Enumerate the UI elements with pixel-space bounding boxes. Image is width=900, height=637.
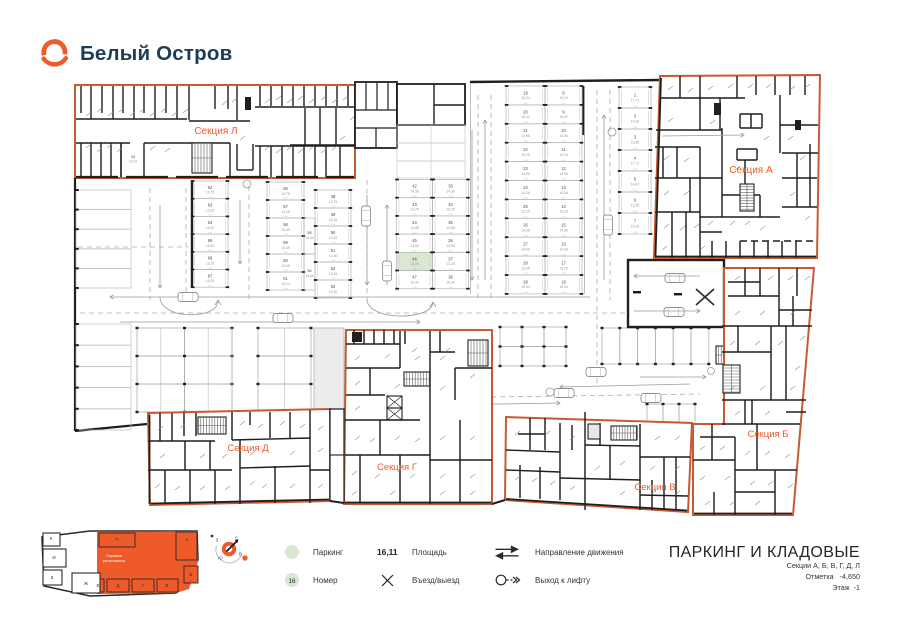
svg-text:22: 22 [523,147,528,152]
svg-text:59: 59 [283,240,288,245]
svg-text:37: 37 [448,256,453,261]
svg-text:13,25: 13,25 [306,236,314,240]
svg-text:19,30: 19,30 [631,119,640,123]
svg-text:14,06: 14,06 [521,247,530,251]
svg-text:К: К [50,536,53,541]
svg-text:65: 65 [208,238,213,243]
svg-text:Б: Б [190,572,193,577]
svg-text:13,25: 13,25 [446,262,455,266]
svg-text:Секции А, Б, В, Г, Д, Л: Секции А, Б, В, Г, Д, Л [787,561,861,570]
svg-text:14,36: 14,36 [410,189,419,193]
svg-text:10: 10 [561,128,566,133]
svg-text:27: 27 [523,242,528,247]
svg-text:15,28: 15,28 [631,224,640,228]
svg-text:13,25: 13,25 [521,210,530,214]
svg-text:14,96: 14,96 [446,244,455,248]
svg-text:36: 36 [448,238,453,243]
svg-text:14,50: 14,50 [206,226,215,230]
svg-text:35: 35 [448,220,453,225]
svg-text:19: 19 [523,91,528,96]
svg-text:Д: Д [116,583,119,588]
svg-text:Секция Д: Секция Д [227,443,269,454]
svg-text:14,30: 14,30 [329,290,338,294]
svg-text:14,06: 14,06 [521,229,530,233]
svg-text:25: 25 [523,204,528,209]
svg-text:55: 55 [307,231,311,235]
svg-text:34: 34 [448,202,453,207]
svg-text:56: 56 [283,186,288,191]
svg-text:15,25: 15,25 [559,210,568,214]
svg-text:13,25: 13,25 [559,153,568,157]
svg-text:ПАРКИНГ И КЛАДОВЫЕ: ПАРКИНГ И КЛАДОВЫЕ [669,544,860,561]
svg-text:15,34: 15,34 [521,285,530,289]
svg-text:64: 64 [208,220,213,225]
svg-text:13,25: 13,25 [410,262,419,266]
svg-text:Секция Г: Секция Г [377,462,417,473]
svg-text:48: 48 [331,194,336,199]
svg-text:14,82: 14,82 [329,236,338,240]
svg-text:16,03: 16,03 [129,160,137,164]
svg-text:Въезд/выезд: Въезд/выезд [412,576,460,585]
svg-text:13,25: 13,25 [521,153,530,157]
svg-text:16,02: 16,02 [521,115,530,119]
svg-text:44: 44 [412,220,417,225]
svg-text:А: А [185,537,188,542]
svg-text:54: 54 [307,269,311,273]
svg-text:67: 67 [208,273,213,278]
svg-text:Отметка -4,650: Отметка -4,650 [805,572,860,581]
svg-text:16,02: 16,02 [559,115,568,119]
svg-text:Паркинг: Паркинг [313,548,343,557]
svg-text:Этаж -1: Этаж -1 [832,583,860,592]
svg-text:24: 24 [523,185,528,190]
svg-text:29: 29 [523,279,528,284]
svg-text:33: 33 [448,184,453,189]
svg-text:Ю: Ю [218,556,223,561]
svg-text:14,06: 14,06 [559,172,568,176]
svg-text:34: 34 [131,155,135,159]
svg-text:13,25: 13,25 [446,208,455,212]
svg-text:14,06: 14,06 [559,247,568,251]
svg-text:15,14: 15,14 [281,282,290,286]
svg-text:Направление движения: Направление движения [535,548,624,557]
svg-text:13,25: 13,25 [281,264,290,268]
svg-text:Е: Е [96,583,99,588]
svg-text:14,06: 14,06 [559,229,568,233]
svg-text:17,72: 17,72 [631,161,640,165]
svg-text:13,25: 13,25 [329,218,338,222]
svg-text:17: 17 [561,261,566,266]
svg-text:14,06: 14,06 [521,191,530,195]
svg-text:26: 26 [523,223,528,228]
svg-text:16: 16 [561,242,566,247]
svg-text:16,11: 16,11 [377,547,398,557]
svg-text:21: 21 [523,128,528,133]
svg-text:53: 53 [331,284,336,289]
svg-text:В: В [165,583,168,588]
svg-text:47: 47 [412,275,417,280]
svg-text:14,50: 14,50 [206,244,215,248]
svg-text:14,56: 14,56 [559,191,568,195]
svg-text:14,56: 14,56 [559,134,568,138]
svg-text:13,75: 13,75 [329,200,338,204]
svg-text:П: П [115,537,118,542]
svg-text:13,25: 13,25 [306,274,314,278]
svg-text:13,55: 13,55 [631,203,640,207]
svg-text:61: 61 [283,276,288,281]
svg-text:14,91: 14,91 [206,279,215,283]
svg-text:Секция Л: Секция Л [194,126,237,137]
svg-text:Белый Остров: Белый Остров [80,42,232,65]
svg-text:49: 49 [331,212,336,217]
svg-text:Выход к лифту: Выход к лифту [535,576,590,585]
svg-text:15,34: 15,34 [410,280,419,284]
svg-text:15,34: 15,34 [446,280,455,284]
svg-text:14,36: 14,36 [446,189,455,193]
svg-text:11: 11 [561,147,566,152]
svg-text:23: 23 [523,166,528,171]
svg-text:14: 14 [561,204,566,209]
svg-text:14,58: 14,58 [410,244,419,248]
svg-text:28: 28 [523,261,528,266]
svg-text:15,24: 15,24 [559,96,568,100]
svg-text:13,25: 13,25 [281,210,290,214]
svg-text:17,71: 17,71 [631,98,640,102]
svg-text:16,85: 16,85 [631,140,640,144]
svg-text:14,30: 14,30 [329,254,338,258]
svg-text:Парковка: Парковка [106,554,122,558]
svg-text:20: 20 [523,109,528,114]
svg-text:Площадь: Площадь [412,548,447,557]
svg-text:42: 42 [412,184,417,189]
svg-text:15,24: 15,24 [521,96,530,100]
svg-text:З: З [216,538,219,543]
svg-text:51: 51 [331,248,336,253]
svg-text:13: 13 [561,185,566,190]
svg-text:13,75: 13,75 [281,192,290,196]
svg-text:60: 60 [283,258,288,263]
svg-text:14,56: 14,56 [521,134,530,138]
svg-text:Секция Б: Секция Б [747,429,788,440]
svg-text:15,34: 15,34 [559,285,568,289]
svg-text:58: 58 [283,222,288,227]
svg-text:14,97: 14,97 [631,182,640,186]
svg-text:14,58: 14,58 [446,226,455,230]
svg-text:52: 52 [331,266,336,271]
svg-text:57: 57 [283,204,288,209]
svg-text:43: 43 [412,202,417,207]
svg-text:46: 46 [412,256,417,261]
svg-text:62: 62 [208,185,213,190]
svg-text:расположена: расположена [103,559,125,563]
svg-text:13,75: 13,75 [206,191,215,195]
svg-text:И: И [52,555,55,560]
svg-text:13,75: 13,75 [410,208,419,212]
svg-text:Номер: Номер [313,576,338,585]
svg-text:18: 18 [561,279,566,284]
svg-text:14,49: 14,49 [281,246,290,250]
svg-text:14,49: 14,49 [281,228,290,232]
svg-text:З: З [51,575,54,580]
svg-text:14,88: 14,88 [410,226,419,230]
svg-text:12: 12 [561,166,566,171]
svg-text:45: 45 [412,238,417,243]
svg-text:66: 66 [208,256,213,261]
svg-text:13,25: 13,25 [206,262,215,266]
svg-text:13,25: 13,25 [559,266,568,270]
svg-text:16: 16 [288,578,296,585]
svg-text:В: В [239,552,242,557]
svg-text:63: 63 [208,203,213,208]
svg-text:50: 50 [331,230,336,235]
svg-text:Секция В: Секция В [634,482,675,493]
svg-text:С: С [235,536,238,541]
svg-text:Секция А: Секция А [729,165,773,176]
svg-text:15: 15 [561,223,566,228]
svg-text:13,25: 13,25 [521,266,530,270]
svg-text:14,06: 14,06 [521,172,530,176]
svg-text:38: 38 [448,275,453,280]
svg-text:13,25: 13,25 [206,208,215,212]
svg-text:13,25: 13,25 [329,272,338,276]
